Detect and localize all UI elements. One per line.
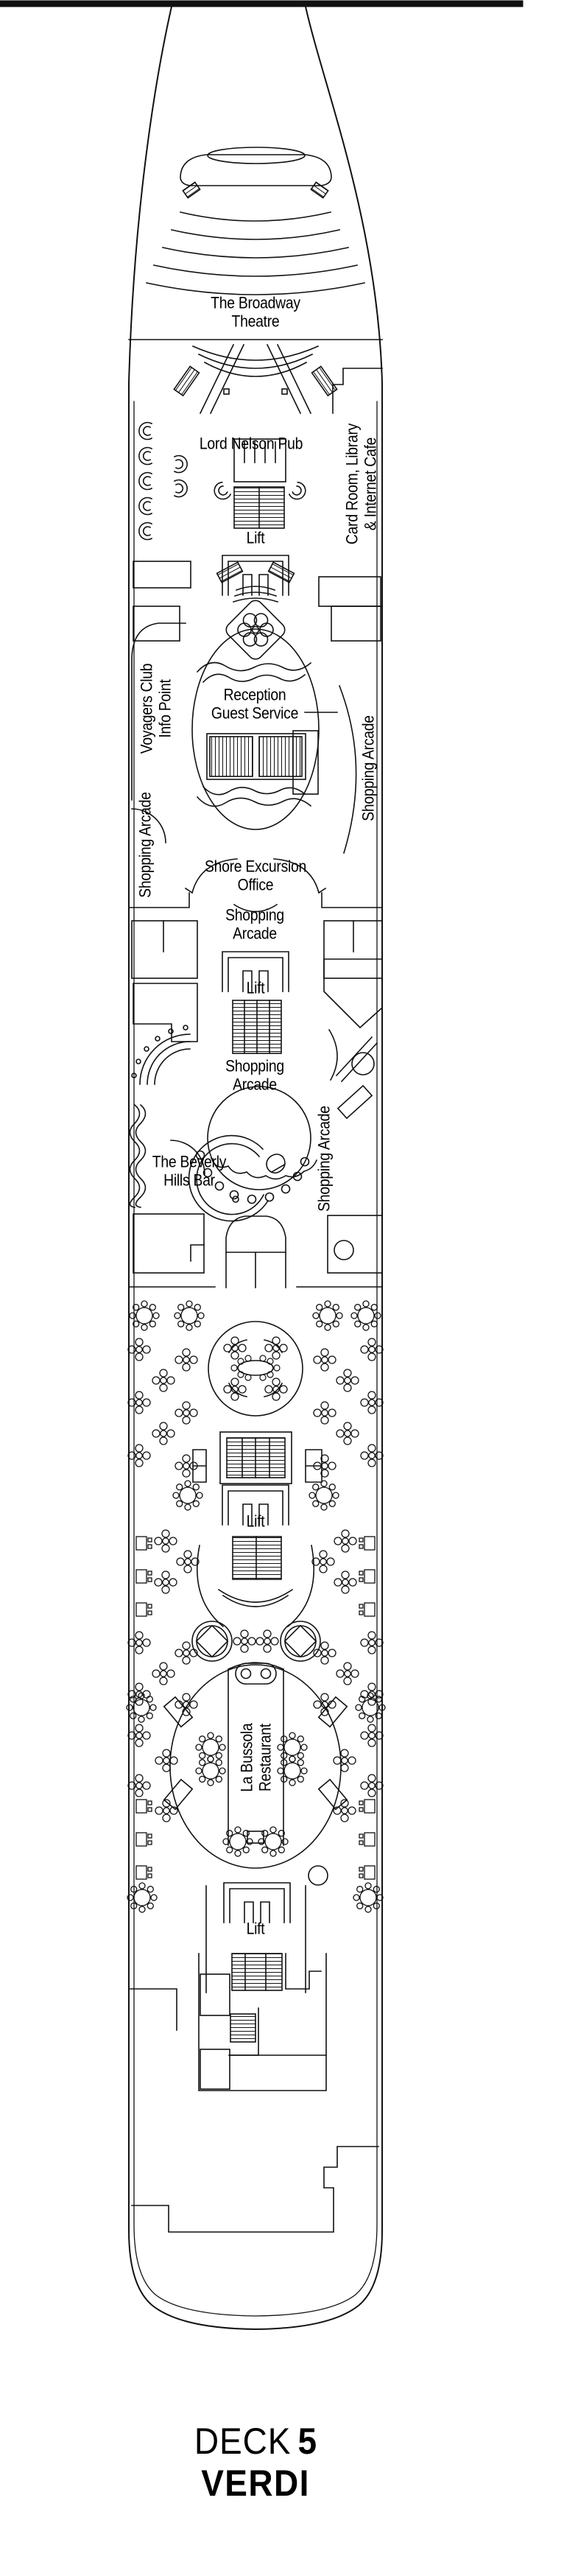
private-dining-circle [208, 1322, 303, 1416]
serving-stations [192, 1621, 320, 1684]
aft-staircase-lift-4 [206, 1866, 328, 2055]
label-lift-3: Lift [247, 1513, 265, 1531]
label-shore-excursion-office: Shore Excursion Office [205, 857, 306, 894]
stern-service-rooms [130, 1954, 378, 2232]
midship-stairs [233, 1000, 281, 1053]
label-la-bussola-restaurant: La Bussola Restaurant [238, 1723, 274, 1791]
label-lift-4: Lift [247, 1920, 265, 1939]
starboard-shop-displays [324, 959, 382, 1118]
label-shopping-arcade-center-1: Shopping Arcade [225, 906, 284, 942]
shopping-arcade-wall [339, 686, 356, 853]
deck-name: VERDI [194, 2463, 317, 2505]
deck-number: 5 [298, 2421, 317, 2462]
midship-lobby-rooms [129, 1214, 382, 1288]
label-shopping-arcade-port: Shopping Arcade [137, 792, 155, 898]
label-broadway-theatre: The Broadway Theatre [211, 294, 300, 330]
deck-caption-line1: DECK5 [194, 2421, 317, 2463]
label-shopping-arcade-center-2: Shopping Arcade [225, 1057, 284, 1093]
grand-piano [263, 1151, 288, 1176]
deck-caption: DECK5 VERDI [194, 2421, 317, 2505]
deck-plan-drawing [0, 0, 578, 2576]
label-shopping-arcade-starboard: Shopping Arcade [360, 715, 378, 821]
label-lift-1: Lift [247, 530, 265, 548]
deck-plan-page: The Broadway Theatre Lord Nelson Pub Lif… [0, 0, 578, 2576]
label-card-room-library: Card Room, Library & Internet Cafe [343, 424, 379, 544]
label-lord-nelson-pub: Lord Nelson Pub [200, 435, 303, 454]
label-shopping-arcade-aft: Shopping Arcade [316, 1106, 334, 1212]
label-voyagers-club: Voyagers Club Info Point [138, 664, 174, 754]
label-lift-2: Lift [247, 980, 265, 998]
theatre-aft-stairs [174, 345, 382, 413]
label-reception-guest-service: Reception Guest Service [211, 686, 298, 722]
deck-word: DECK [194, 2421, 291, 2462]
port-shop-displays [132, 983, 197, 1084]
label-beverly-hills-bar: The Beverly Hills Bar [152, 1153, 226, 1189]
